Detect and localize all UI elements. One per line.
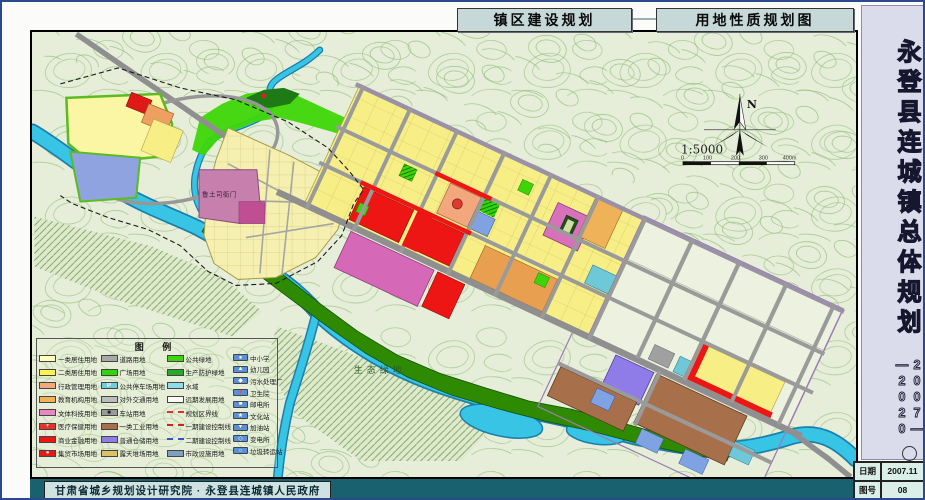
legend-item: ★文化站 — [233, 410, 275, 422]
legend-symbol-icon: ◇ — [238, 436, 243, 442]
legend-item: 普通仓储用地 — [101, 433, 165, 447]
legend-swatch: P — [101, 382, 118, 389]
legend-swatch — [39, 436, 56, 443]
legend-swatch: ◆ — [233, 377, 248, 384]
legend-item: 教育机构用地 — [39, 393, 99, 407]
legend-symbol-icon: ◆ — [238, 378, 243, 384]
date-value: 2007.11 — [881, 462, 924, 481]
legend-item: 二期建设控制线 — [167, 433, 232, 447]
legend-swatch — [39, 409, 56, 416]
legend-item: 行政管理用地 — [39, 379, 99, 393]
sheet-value: 08 — [881, 481, 924, 500]
credit-box: 甘肃省城乡规划设计研究院 · 永登县连城镇人民政府 — [44, 481, 331, 500]
date-label: 日期 — [854, 462, 881, 481]
legend-column: 一类居住用地二类居住用地行政管理用地教育机构用地文体科技用地+医疗保健用地商业金… — [39, 352, 99, 460]
legend-swatch: ▼ — [233, 424, 248, 431]
legend-column: ●中小学▲幼儿园◆污水处理厂+卫生院■邮电所★文化站▼加油站◇变电所○垃圾转运站 — [233, 352, 275, 460]
legend-label: 公共停车场用地 — [120, 381, 166, 391]
legend-swatch: ● — [39, 450, 56, 457]
legend-swatch: ■ — [101, 409, 118, 416]
legend-item: ▲幼儿园 — [233, 364, 275, 376]
legend-item: 一期建设控制线 — [167, 420, 232, 434]
legend-swatch — [101, 369, 118, 376]
legend-item: 露天堆场用地 — [101, 447, 165, 461]
legend-label: 露天堆场用地 — [120, 448, 159, 458]
legend-item: 商业金融用地 — [39, 433, 99, 447]
legend-label: 对外交通用地 — [120, 394, 159, 404]
legend-label: 加油站 — [250, 422, 270, 432]
legend-label: 文体科技用地 — [58, 408, 97, 418]
map-frame: 鲁土司衙门 — [30, 30, 858, 479]
legend-label: 教育机构用地 — [58, 394, 97, 404]
legend-item: ○垃圾转运站 — [233, 445, 275, 457]
title-box-construction-plan: 镇区建设规划 — [457, 8, 632, 32]
legend-symbol-icon: ■ — [239, 401, 243, 407]
svg-text:0: 0 — [681, 156, 684, 162]
stamp-circle-icon — [902, 446, 917, 461]
legend-label: 中小学 — [250, 353, 270, 363]
legend-swatch: ◇ — [233, 435, 248, 442]
legend-label: 二类居住用地 — [58, 367, 97, 377]
legend-label: 变电所 — [250, 434, 270, 444]
legend-label: 邮电所 — [250, 399, 270, 409]
legend-symbol-icon: ▼ — [238, 424, 244, 430]
legend-label: 普通仓储用地 — [120, 435, 159, 445]
sheet-label: 图号 — [854, 481, 881, 500]
legend-swatch — [101, 396, 118, 403]
legend-label: 车站用地 — [120, 408, 146, 418]
west-facility-parcel — [70, 152, 140, 202]
legend-swatch: ● — [233, 354, 248, 361]
title-box-landuse-plan: 用地性质规划图 — [656, 8, 854, 32]
legend-symbol-icon: ▲ — [238, 366, 244, 372]
legend-label: 一类工业用地 — [120, 421, 159, 431]
legend-swatch — [167, 396, 184, 403]
legend-label: 商业金融用地 — [58, 435, 97, 445]
legend-swatch — [101, 436, 118, 443]
legend-item: 水域 — [167, 379, 232, 393]
legend-swatch — [101, 423, 118, 430]
legend-symbol-icon: + — [239, 390, 243, 396]
legend-label: 规划区界线 — [186, 408, 219, 418]
legend-swatch: + — [39, 423, 56, 430]
legend-label: 水域 — [186, 381, 199, 391]
legend-label: 医疗保健用地 — [58, 421, 97, 431]
legend-swatch — [39, 396, 56, 403]
historic-annex-parcel — [239, 202, 265, 224]
legend-swatch — [167, 438, 184, 442]
legend-item: +医疗保健用地 — [39, 420, 99, 434]
legend-symbol-icon: ● — [46, 450, 50, 456]
legend-item: 道路用地 — [101, 352, 165, 366]
plan-years-vertical: 2007— —2020 — [862, 342, 924, 454]
legend-swatch — [101, 355, 118, 362]
legend-swatch: ▲ — [233, 366, 248, 373]
pavilion-dot — [261, 93, 266, 98]
compass-n-label: N — [747, 98, 757, 111]
legend-symbol-icon: + — [46, 423, 50, 429]
legend-item: 对外交通用地 — [101, 393, 165, 407]
legend-label: 二期建设控制线 — [186, 435, 232, 445]
legend-item: ▼加油站 — [233, 422, 275, 434]
legend-symbol-icon: ○ — [239, 448, 243, 454]
legend-label: 幼儿园 — [250, 364, 270, 374]
legend-label: 文化站 — [250, 411, 270, 421]
legend-label: 集贸市场用地 — [58, 448, 97, 458]
info-table: 日期 2007.11 图号 08 — [853, 461, 925, 500]
legend-label: 垃圾转运站 — [250, 446, 283, 456]
svg-text:200: 200 — [731, 156, 740, 162]
legend-swatch — [167, 382, 184, 389]
legend-swatch — [39, 382, 56, 389]
legend-item: +卫生院 — [233, 387, 275, 399]
scale-text: 1:5000 — [681, 143, 723, 157]
legend-column: 公共绿地生产防护绿地水域远期发展用地规划区界线一期建设控制线二期建设控制线市政设… — [167, 352, 232, 460]
legend-item: ■车站用地 — [101, 406, 165, 420]
legend-label: 道路用地 — [120, 354, 146, 364]
svg-text:300: 300 — [759, 156, 768, 162]
legend-swatch — [167, 411, 184, 415]
legend-label: 市政设施用地 — [186, 448, 225, 458]
legend-swatch — [39, 355, 56, 362]
legend-item: ◆污水处理厂 — [233, 375, 275, 387]
legend-box: 图 例 一类居住用地二类居住用地行政管理用地教育机构用地文体科技用地+医疗保健用… — [36, 338, 278, 468]
legend-item: 一类工业用地 — [101, 420, 165, 434]
legend-label: 公共绿地 — [186, 354, 212, 364]
legend-swatch: ○ — [233, 447, 248, 454]
historic-site-label: 鲁土司衙门 — [202, 190, 237, 199]
legend-label: 一类居住用地 — [58, 354, 97, 364]
eco-green-label: 生态绿地 — [354, 364, 406, 375]
legend-label: 生产防护绿地 — [186, 367, 225, 377]
legend-label: 一期建设控制线 — [186, 421, 232, 431]
legend-symbol-icon: ● — [239, 355, 243, 361]
legend-item: 二类居住用地 — [39, 366, 99, 380]
legend-swatch — [39, 369, 56, 376]
svg-text:100: 100 — [703, 156, 712, 162]
legend-columns: 一类居住用地二类居住用地行政管理用地教育机构用地文体科技用地+医疗保健用地商业金… — [39, 352, 275, 460]
legend-swatch — [167, 355, 184, 362]
legend-item: 公共绿地 — [167, 352, 232, 366]
legend-item: 远期发展用地 — [167, 393, 232, 407]
legend-swatch: ★ — [233, 412, 248, 419]
legend-label: 远期发展用地 — [186, 394, 225, 404]
legend-swatch: + — [233, 389, 248, 396]
legend-symbol-icon: ■ — [107, 410, 111, 416]
legend-item: 广场用地 — [101, 366, 165, 380]
legend-item: ■邮电所 — [233, 398, 275, 410]
legend-item: 文体科技用地 — [39, 406, 99, 420]
legend-item: ◇变电所 — [233, 433, 275, 445]
plan-sheet: 镇区建设规划 用地性质规划图 — [0, 0, 925, 500]
title-connector-line — [630, 18, 656, 20]
legend-swatch — [167, 369, 184, 376]
legend-label: 污水处理厂 — [250, 376, 283, 386]
legend-item: 一类居住用地 — [39, 352, 99, 366]
legend-label: 广场用地 — [120, 367, 146, 377]
legend-item: 生产防护绿地 — [167, 366, 232, 380]
legend-swatch: ■ — [233, 401, 248, 408]
svg-text:400m: 400m — [783, 156, 797, 162]
legend-label: 卫生院 — [250, 388, 270, 398]
legend-item: 规划区界线 — [167, 406, 232, 420]
legend-item: P公共停车场用地 — [101, 379, 165, 393]
legend-label: 行政管理用地 — [58, 381, 97, 391]
legend-item: 市政设施用地 — [167, 447, 232, 461]
legend-column: 道路用地广场用地P公共停车场用地对外交通用地■车站用地一类工业用地普通仓储用地露… — [101, 352, 165, 460]
legend-title: 图 例 — [39, 340, 275, 352]
plan-title-vertical: 永登县连城镇总体规划 — [862, 34, 924, 344]
legend-item: ●中小学 — [233, 352, 275, 364]
legend-symbol-icon: ★ — [238, 413, 243, 419]
legend-symbol-icon: P — [107, 383, 111, 389]
legend-item: ●集贸市场用地 — [39, 447, 99, 461]
legend-swatch — [167, 424, 184, 428]
legend-swatch — [101, 450, 118, 457]
legend-swatch — [167, 450, 184, 457]
sidebar-panel: 永登县连城镇总体规划 2007— —2020 — [861, 5, 925, 460]
